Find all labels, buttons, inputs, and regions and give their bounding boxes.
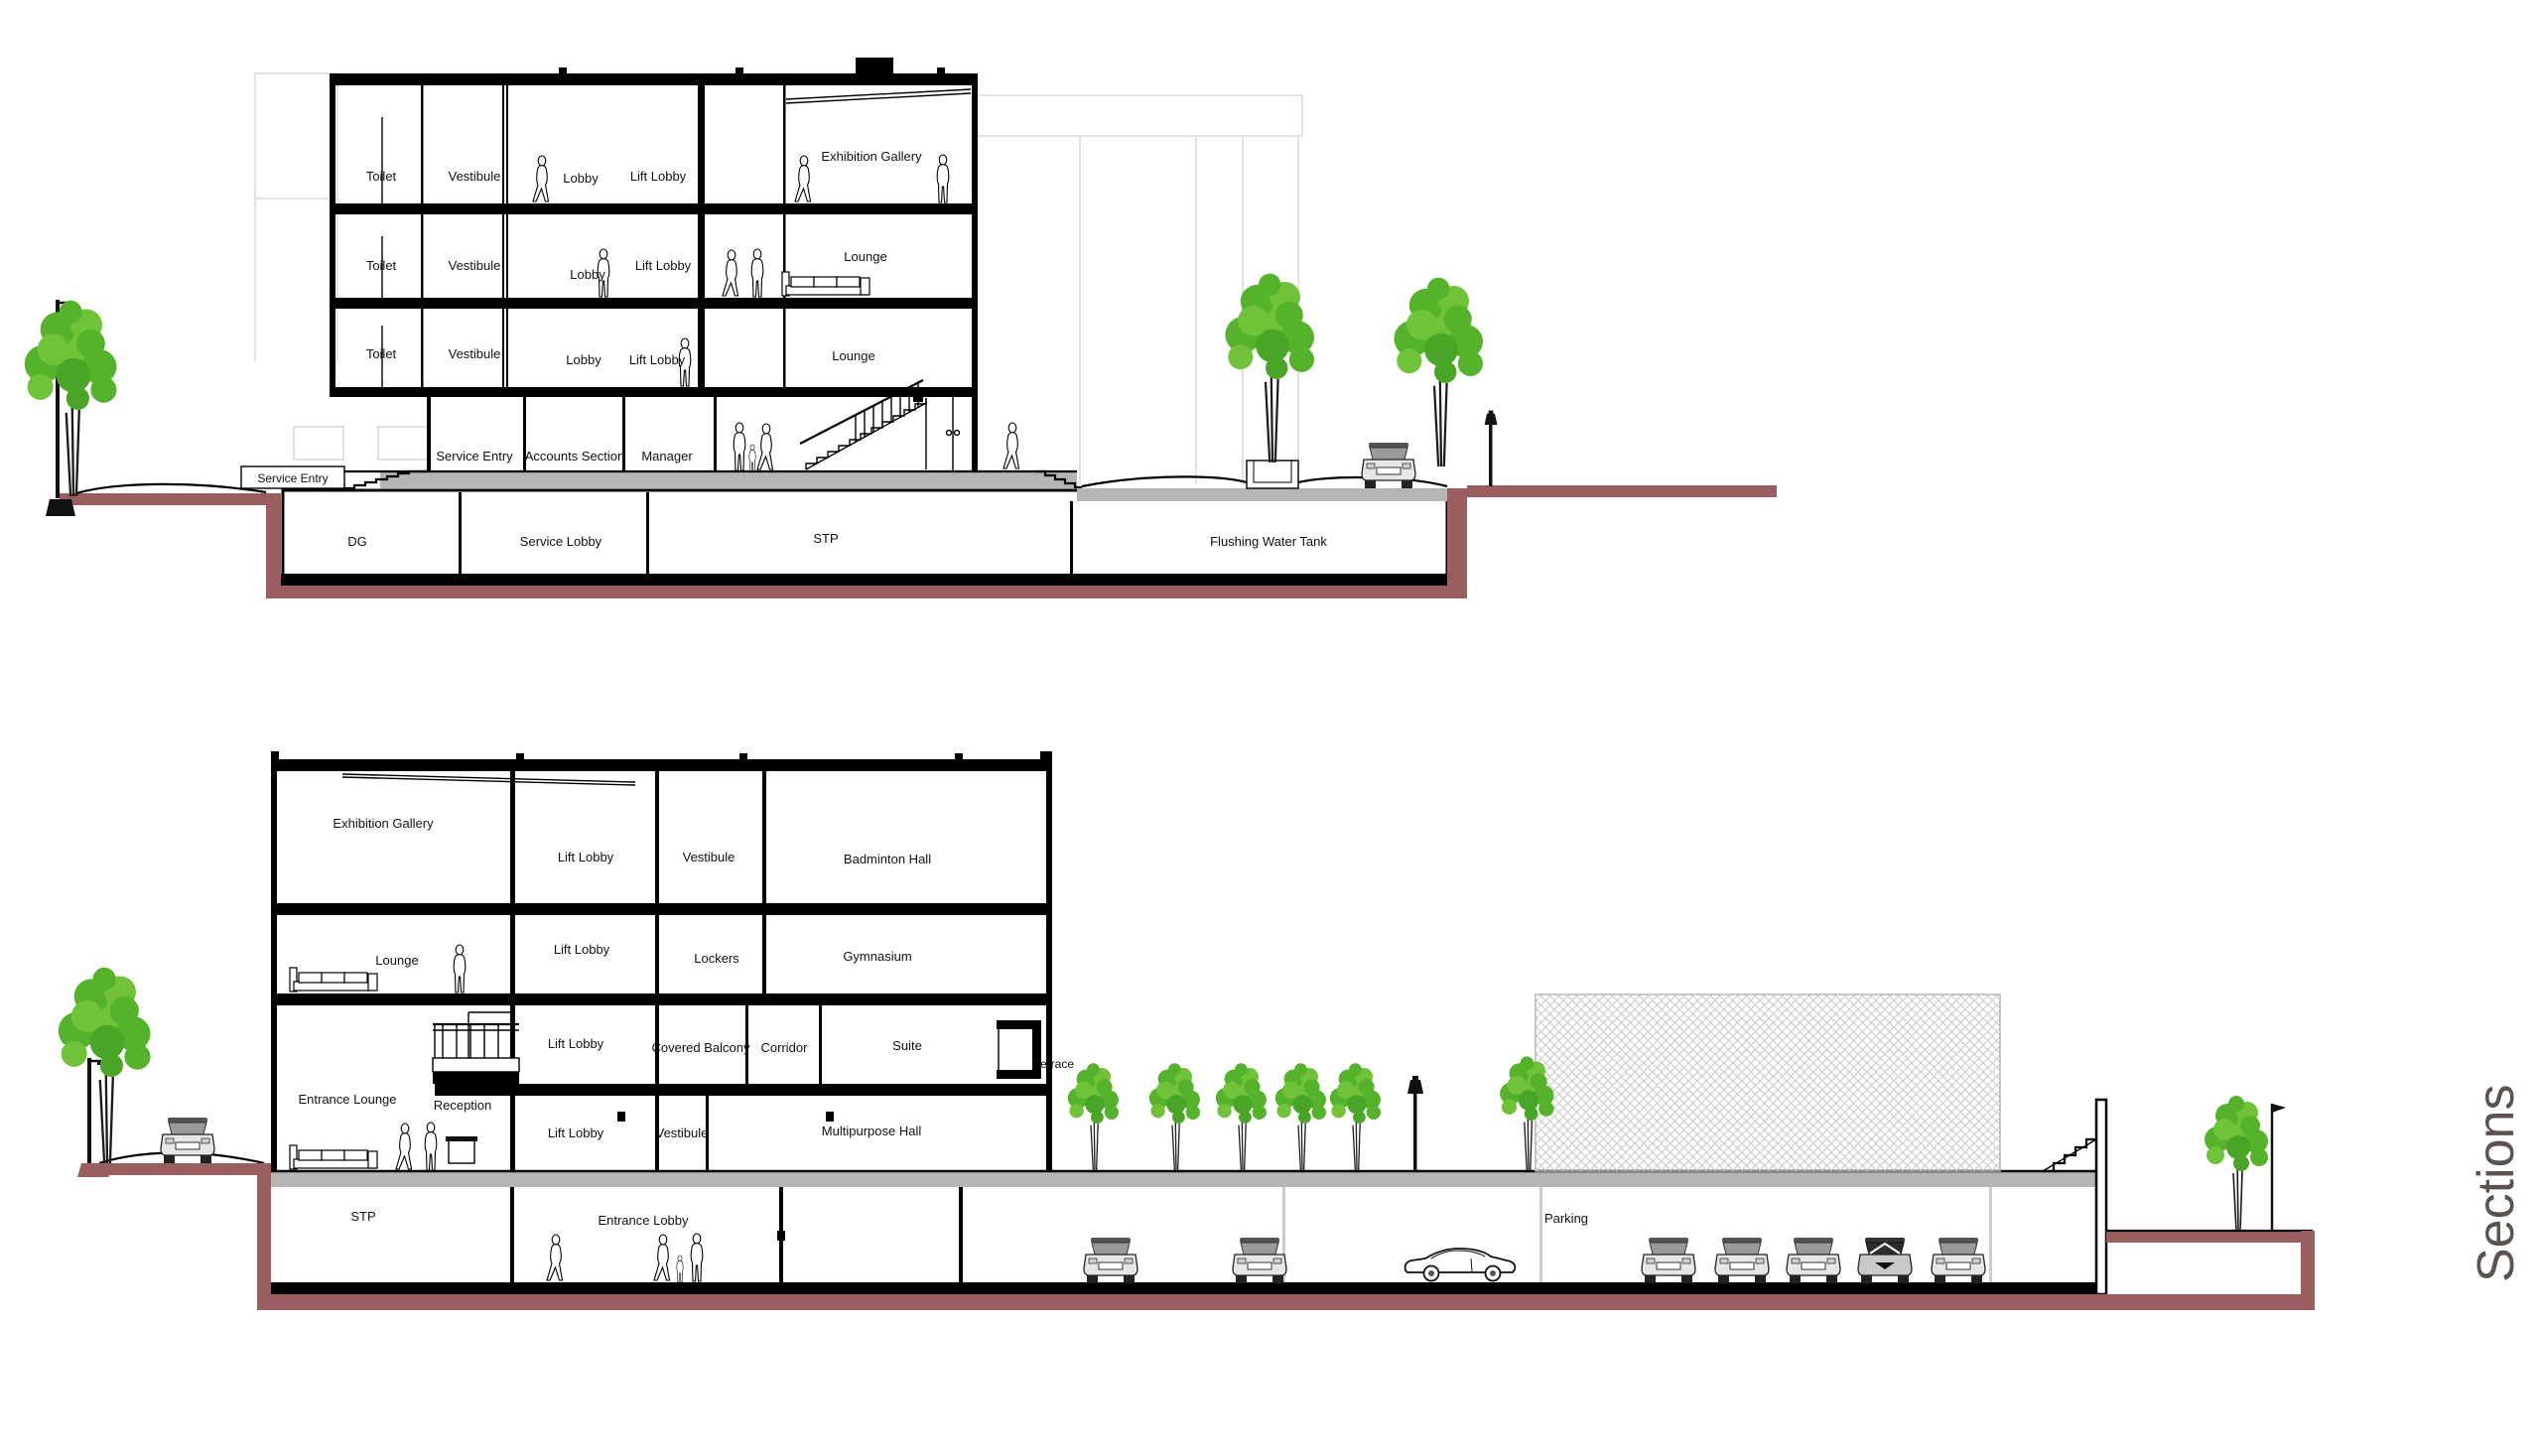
person-figure	[734, 423, 745, 470]
room-label-lift-lobby-f1: Lift Lobby	[630, 169, 687, 184]
tree-icon	[2205, 1096, 2268, 1231]
room-label-toilet-f2: Toilet	[366, 258, 397, 273]
room-label-toilet-f1: Toilet	[366, 169, 397, 184]
street-lamp-icon	[1485, 411, 1498, 425]
person-figure	[723, 250, 738, 296]
room-label-manager: Manager	[641, 449, 693, 463]
reception-desk	[449, 1139, 474, 1163]
car-icon	[1642, 1238, 1695, 1283]
room-label-lift-lobby-b3: Lift Lobby	[548, 1036, 604, 1051]
person-figure	[454, 945, 466, 993]
room-label-suite: Suite	[892, 1038, 922, 1053]
room-label-gymnasium: Gymnasium	[843, 949, 911, 964]
room-label-stp-b: STP	[350, 1209, 375, 1224]
tree-icon	[1330, 1063, 1381, 1171]
room-label-lift-lobby-b2: Lift Lobby	[554, 942, 610, 957]
car-icon	[1084, 1238, 1137, 1283]
room-label-service-entry: Service Entry	[436, 449, 513, 463]
person-figure-child	[749, 445, 755, 470]
room-label-service-lobby: Service Lobby	[520, 534, 602, 549]
room-label-corridor: Corridor	[761, 1040, 809, 1055]
person-figure	[1003, 423, 1019, 468]
sections-drawing: Toilet Vestibule Lobby Lift Lobby Exhibi…	[0, 0, 2541, 1456]
room-label-lounge-f2: Lounge	[844, 249, 886, 264]
tree-icon	[25, 301, 117, 496]
person-figure	[937, 155, 949, 202]
tree-icon	[1394, 278, 1483, 466]
room-label-gallery-a: Exhibition Gallery	[821, 149, 922, 164]
section-a: Toilet Vestibule Lobby Lift Lobby Exhibi…	[25, 58, 1777, 598]
room-label-vestibule-f3: Vestibule	[449, 346, 501, 361]
people-a	[533, 155, 1019, 470]
door-handle-mark	[955, 431, 960, 436]
room-label-lounge-b: Lounge	[375, 953, 418, 968]
title-block: Sections	[2468, 1085, 2525, 1282]
sofa-icon	[290, 1145, 377, 1169]
section-b: Exhibition Gallery Lift Lobby Vestibule …	[59, 751, 2315, 1310]
car-dark-icon	[1858, 1238, 1912, 1283]
person-figure	[691, 1234, 703, 1281]
person-figure	[547, 1235, 563, 1280]
room-label-entrance-lobby: Entrance Lobby	[598, 1213, 689, 1228]
room-label-toilet-f3: Toilet	[366, 346, 397, 361]
room-label-gallery-b: Exhibition Gallery	[333, 816, 434, 831]
person-figure	[654, 1235, 670, 1280]
person-figure	[425, 1123, 437, 1170]
room-label-lift-lobby-b4: Lift Lobby	[548, 1125, 604, 1140]
room-label-lift-lobby-b1: Lift Lobby	[558, 850, 614, 864]
tree-icon	[1275, 1063, 1326, 1171]
room-label-dg: DG	[347, 534, 367, 549]
flag-icon	[2272, 1104, 2286, 1113]
roof-hatch	[856, 58, 893, 73]
tree-icon	[1149, 1063, 1200, 1171]
room-label-vestibule-f1: Vestibule	[449, 169, 501, 184]
room-label-badminton: Badminton Hall	[844, 852, 931, 866]
person-figure	[396, 1124, 412, 1169]
sofa-icon	[782, 272, 869, 296]
annotation-terrace: Terrace	[1034, 1057, 1074, 1071]
slabs-a	[330, 58, 978, 397]
car-icon	[1932, 1238, 1985, 1283]
person-figure	[533, 156, 549, 201]
room-label-vestibule-b1: Vestibule	[683, 850, 736, 864]
tree-icon	[1068, 1063, 1119, 1171]
person-figure	[757, 424, 773, 469]
room-label-lift-lobby-f2: Lift Lobby	[635, 258, 692, 273]
street-lamp-icon	[1407, 1076, 1423, 1094]
room-label-stp-a: STP	[813, 531, 838, 546]
architectural-sections-sheet: Toilet Vestibule Lobby Lift Lobby Exhibi…	[0, 0, 2541, 1456]
room-label-vestibule-f2: Vestibule	[449, 258, 501, 273]
boundary-wall	[2096, 1100, 2106, 1294]
car-icon	[1362, 443, 1415, 488]
person-figure-child	[677, 1256, 683, 1281]
room-label-entrance-lounge: Entrance Lounge	[298, 1092, 396, 1107]
car-side-icon	[1405, 1249, 1516, 1281]
car-icon	[1787, 1238, 1840, 1283]
person-figure	[751, 249, 763, 297]
room-label-lounge-f3: Lounge	[832, 348, 874, 363]
room-label-parking: Parking	[1544, 1211, 1588, 1226]
planter	[1247, 461, 1298, 488]
room-label-lobby-f3: Lobby	[566, 352, 602, 367]
tree-icon	[1216, 1063, 1267, 1171]
person-figure	[795, 156, 811, 201]
room-label-flushing-tank: Flushing Water Tank	[1210, 534, 1327, 549]
door-handle-mark	[947, 431, 952, 436]
room-label-multipurpose-hall: Multipurpose Hall	[822, 1124, 922, 1138]
sofa-icon	[290, 968, 377, 992]
screen-wall-hatch	[1536, 994, 2000, 1171]
room-label-lift-lobby-f3: Lift Lobby	[629, 352, 686, 367]
room-label-covered-balcony: Covered Balcony	[652, 1040, 750, 1055]
background-outline	[255, 73, 1302, 484]
sheet-title: Sections	[2468, 1085, 2525, 1282]
room-label-lobby-f2: Lobby	[570, 267, 605, 282]
labels-b: Exhibition Gallery Lift Lobby Vestibule …	[298, 816, 1588, 1228]
annotation-service-entry-ramp: Service Entry	[257, 471, 328, 485]
room-label-accounts: Accounts Section	[525, 449, 624, 463]
car-icon	[1715, 1238, 1769, 1283]
parking-cars	[1084, 1238, 1985, 1283]
car-icon	[161, 1118, 214, 1163]
car-icon	[1233, 1238, 1286, 1283]
window-outline	[378, 427, 428, 460]
tree-icon	[1225, 274, 1314, 463]
tree-icon	[59, 968, 151, 1163]
room-label-vestibule-b4: Vestibule	[656, 1125, 709, 1140]
room-label-lobby-f1: Lobby	[563, 171, 599, 186]
room-label-lockers: Lockers	[694, 951, 739, 966]
window-outline	[294, 427, 343, 460]
room-label-reception: Reception	[434, 1098, 492, 1113]
